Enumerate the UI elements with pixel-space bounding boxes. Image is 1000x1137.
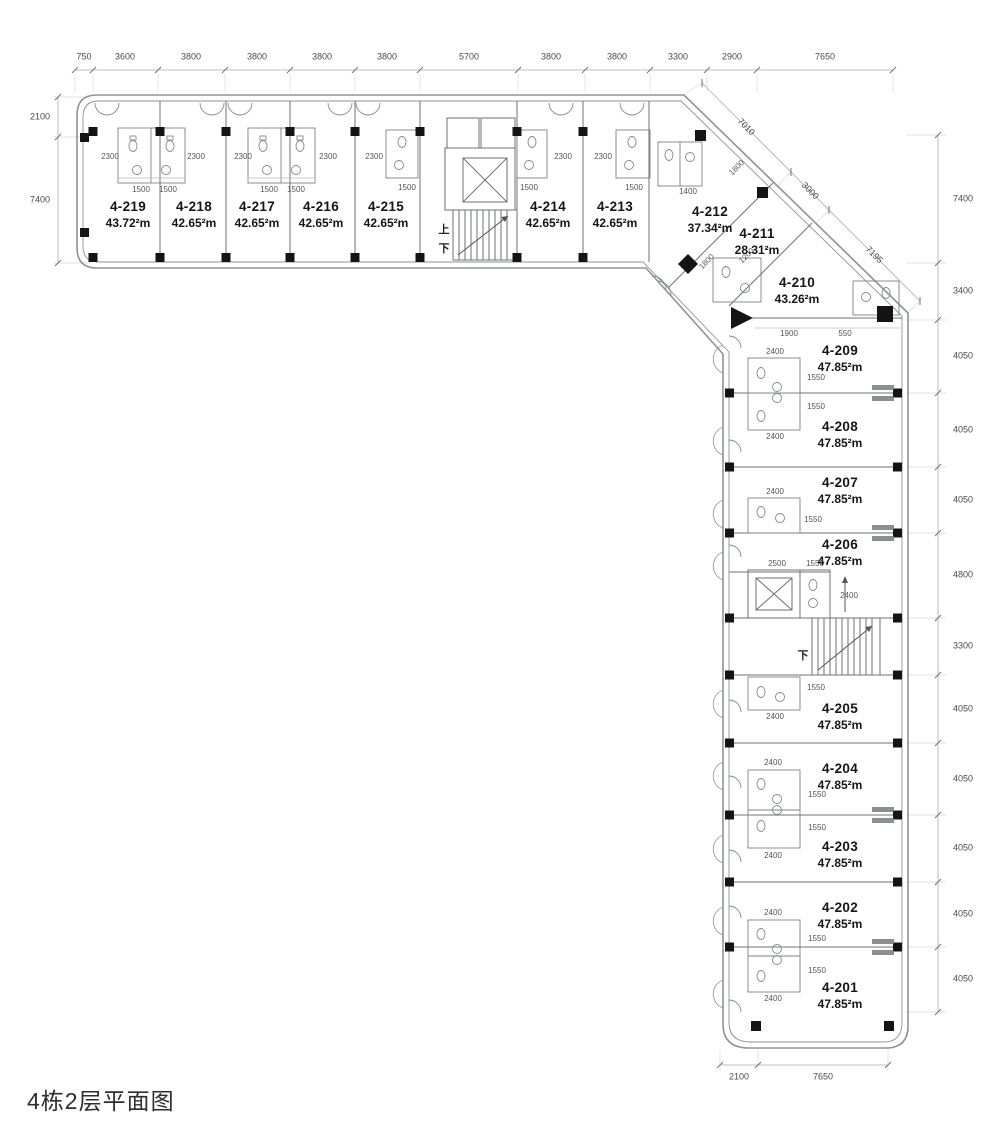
doors — [95, 103, 741, 1012]
room-area: 47.85²m — [818, 492, 863, 507]
room-area: 42.65²m — [593, 216, 638, 231]
room-label-4-212: 4-212 37.34²m — [688, 204, 733, 236]
dim-int-26: 2500 — [768, 560, 786, 568]
room-id: 4-201 — [818, 980, 863, 997]
room-label-4-215: 4-215 42.65²m — [364, 199, 409, 231]
room-label-4-207: 4-207 47.85²m — [818, 475, 863, 507]
dim-right-11: 4050 — [953, 975, 973, 984]
room-label-4-219: 4-219 43.72²m — [106, 199, 151, 231]
dim-int-12: 1500 — [520, 184, 538, 192]
dim-int-14: 1400 — [679, 188, 697, 196]
dim-int-18: 1900 — [780, 330, 798, 338]
room-id: 4-206 — [818, 537, 863, 554]
dim-int-20: 2400 — [766, 348, 784, 356]
room-area: 42.65²m — [172, 216, 217, 231]
dim-int-8: 1500 — [159, 186, 177, 194]
dim-int-2: 2300 — [234, 153, 252, 161]
room-id: 4-209 — [818, 343, 863, 360]
dim-int-21: 1550 — [807, 374, 825, 382]
dim-int-19: 550 — [838, 330, 851, 338]
dim-top-3: 3800 — [247, 53, 267, 62]
room-id: 4-208 — [818, 419, 863, 436]
room-area: 37.34²m — [688, 221, 733, 236]
room-area: 42.65²m — [526, 216, 571, 231]
room-area: 43.72²m — [106, 216, 151, 231]
room-label-4-202: 4-202 47.85²m — [818, 900, 863, 932]
room-id: 4-205 — [818, 701, 863, 718]
room-area: 47.85²m — [818, 718, 863, 733]
room-id: 4-217 — [235, 199, 280, 216]
dim-right-1: 3400 — [953, 287, 973, 296]
dim-int-34: 2400 — [764, 852, 782, 860]
dim-top-5: 3800 — [377, 53, 397, 62]
room-label-4-206: 4-206 47.85²m — [818, 537, 863, 569]
room-area: 43.26²m — [775, 292, 820, 307]
dim-int-29: 1550 — [807, 684, 825, 692]
dim-int-9: 1500 — [260, 186, 278, 194]
dim-left-1: 7400 — [30, 196, 50, 205]
stair-up-label-top: 上 — [439, 221, 450, 237]
room-label-4-209: 4-209 47.85²m — [818, 343, 863, 375]
dim-top-8: 3800 — [607, 53, 627, 62]
dim-right-8: 4050 — [953, 775, 973, 784]
dim-int-35: 2400 — [764, 909, 782, 917]
room-id: 4-219 — [106, 199, 151, 216]
dim-right-6: 3300 — [953, 642, 973, 651]
dim-int-25: 1550 — [804, 516, 822, 524]
dim-bottom-1: 7650 — [813, 1073, 833, 1082]
dim-right-3: 4050 — [953, 426, 973, 435]
north-wedge — [731, 307, 753, 329]
room-id: 4-213 — [593, 199, 638, 216]
room-label-4-204: 4-204 47.85²m — [818, 761, 863, 793]
dim-int-38: 2400 — [764, 995, 782, 1003]
room-area: 47.85²m — [818, 436, 863, 451]
room-id: 4-214 — [526, 199, 571, 216]
dim-right-10: 4050 — [953, 910, 973, 919]
dim-right-9: 4050 — [953, 844, 973, 853]
room-area: 28.31²m — [735, 243, 780, 258]
stairs-top — [453, 210, 517, 260]
dim-right-2: 4050 — [953, 352, 973, 361]
room-label-4-208: 4-208 47.85²m — [818, 419, 863, 451]
window-hatches — [872, 385, 894, 955]
dim-int-11: 1500 — [398, 184, 416, 192]
dim-top-2: 3800 — [181, 53, 201, 62]
balcony-scallops — [713, 345, 723, 1008]
room-id: 4-218 — [172, 199, 217, 216]
dim-top-9: 3300 — [668, 53, 688, 62]
stair-down-label-right: 下 — [798, 647, 809, 663]
dim-top-10: 2900 — [722, 53, 742, 62]
room-area: 47.85²m — [818, 360, 863, 375]
room-label-4-213: 4-213 42.65²m — [593, 199, 638, 231]
dim-right-7: 4050 — [953, 705, 973, 714]
dim-int-1: 2300 — [187, 153, 205, 161]
room-label-4-214: 4-214 42.65²m — [526, 199, 571, 231]
room-id: 4-207 — [818, 475, 863, 492]
dim-int-37: 1550 — [808, 967, 826, 975]
room-area: 42.65²m — [299, 216, 344, 231]
room-area: 42.65²m — [235, 216, 280, 231]
room-label-4-211: 4-211 28.31²m — [735, 226, 780, 258]
dim-int-3: 2300 — [319, 153, 337, 161]
dim-int-0: 2300 — [101, 153, 119, 161]
room-id: 4-215 — [364, 199, 409, 216]
dim-top-11: 7650 — [815, 53, 835, 62]
stair-core-top — [445, 118, 517, 260]
dim-int-6: 2300 — [594, 153, 612, 161]
dim-right-5: 4800 — [953, 571, 973, 580]
room-id: 4-204 — [818, 761, 863, 778]
room-id: 4-202 — [818, 900, 863, 917]
dim-top-0: 750 — [76, 53, 91, 62]
dim-right-0: 7400 — [953, 195, 973, 204]
dim-int-28: 2400 — [840, 592, 858, 600]
dim-int-24: 2400 — [766, 488, 784, 496]
room-label-4-203: 4-203 47.85²m — [818, 839, 863, 871]
room-id: 4-211 — [735, 226, 780, 243]
room-label-4-205: 4-205 47.85²m — [818, 701, 863, 733]
room-area: 47.85²m — [818, 917, 863, 932]
floor-plan-canvas: 750 3600 3800 3800 3800 3800 5700 3800 3… — [0, 0, 1000, 1137]
dim-top-4: 3800 — [312, 53, 332, 62]
dim-int-36: 1550 — [808, 935, 826, 943]
dim-bottom-0: 2100 — [729, 1073, 749, 1082]
stair-down-label-top: 下 — [439, 240, 450, 256]
dim-int-31: 2400 — [764, 759, 782, 767]
room-label-4-218: 4-218 42.65²m — [172, 199, 217, 231]
dim-top-7: 3800 — [541, 53, 561, 62]
dim-right-4: 4050 — [953, 496, 973, 505]
room-id: 4-210 — [775, 275, 820, 292]
dim-top-6: 5700 — [459, 53, 479, 62]
room-label-4-210: 4-210 43.26²m — [775, 275, 820, 307]
dim-int-22: 1550 — [807, 403, 825, 411]
room-area: 47.85²m — [818, 997, 863, 1012]
room-area: 47.85²m — [818, 778, 863, 793]
dim-int-5: 2300 — [554, 153, 572, 161]
dim-int-10: 1500 — [287, 186, 305, 194]
room-area: 42.65²m — [364, 216, 409, 231]
room-area: 47.85²m — [818, 554, 863, 569]
room-id: 4-203 — [818, 839, 863, 856]
room-label-4-216: 4-216 42.65²m — [299, 199, 344, 231]
columns — [80, 127, 902, 1031]
dim-int-7: 1500 — [132, 186, 150, 194]
stair-core-right — [748, 570, 880, 675]
dim-top-1: 3600 — [115, 53, 135, 62]
room-label-4-201: 4-201 47.85²m — [818, 980, 863, 1012]
room-area: 47.85²m — [818, 856, 863, 871]
plan-title: 4栋2层平面图 — [27, 1082, 175, 1116]
room-id: 4-216 — [299, 199, 344, 216]
dim-left-0: 2100 — [30, 113, 50, 122]
room-label-4-217: 4-217 42.65²m — [235, 199, 280, 231]
dim-int-4: 2300 — [365, 153, 383, 161]
dim-int-23: 2400 — [766, 433, 784, 441]
dim-int-13: 1500 — [625, 184, 643, 192]
dim-int-30: 2400 — [766, 713, 784, 721]
stairs-right — [812, 618, 880, 675]
dim-int-33: 1550 — [808, 824, 826, 832]
room-id: 4-212 — [688, 204, 733, 221]
